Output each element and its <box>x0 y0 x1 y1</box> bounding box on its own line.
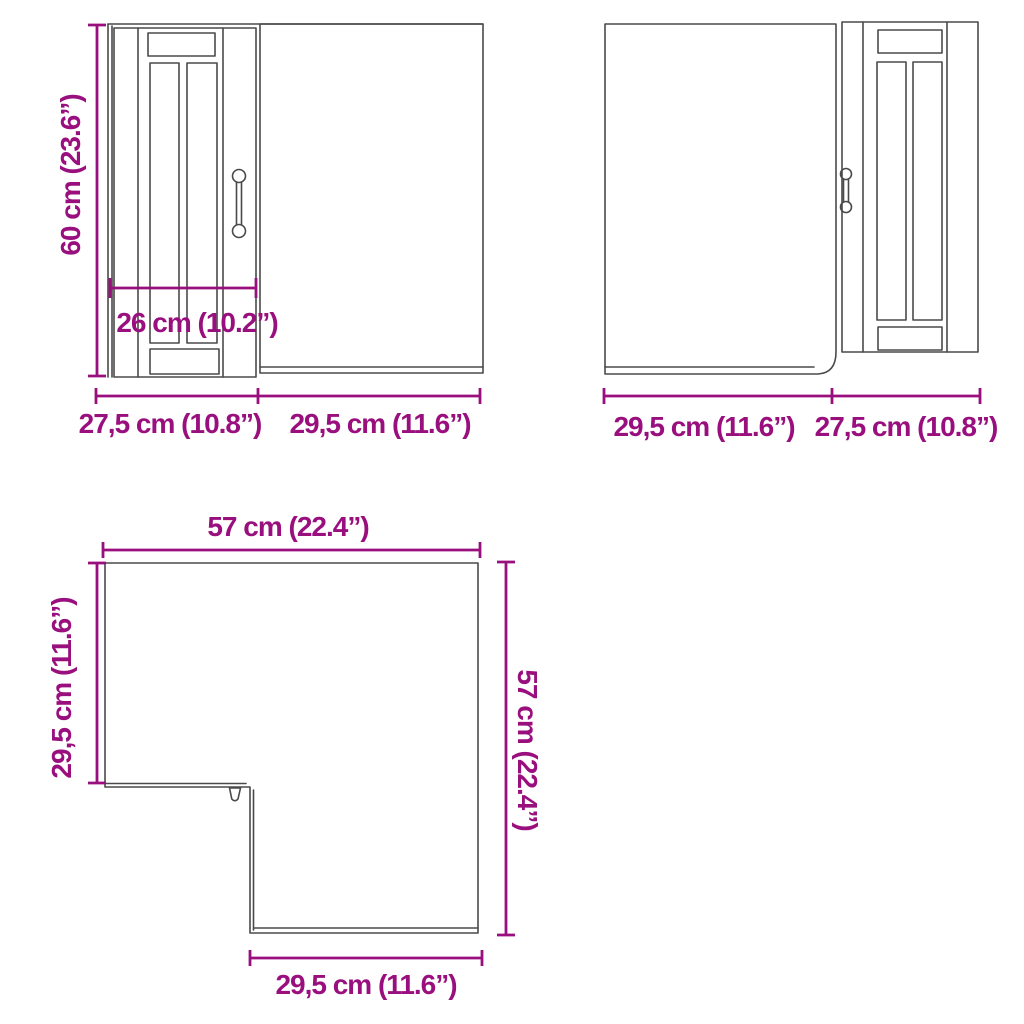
door-handle-top-icon <box>230 788 241 801</box>
door-handle-icon <box>233 170 246 238</box>
plan-right-dimension-label: 57 cm (22.4”) <box>512 600 542 900</box>
front-left-bottom-right-dimension-label: 29,5 cm (11.6”) <box>230 409 530 439</box>
door-glass-panel-right <box>187 63 217 343</box>
door-glass-panel-left <box>877 62 906 320</box>
door-glass-panel-right <box>913 62 942 320</box>
front-view-door-right <box>604 22 980 404</box>
plan-top-dimension-label: 57 cm (22.4”) <box>138 512 438 542</box>
dimension-diagram: 60 cm (23.6”) 26 cm (10.2”) 27,5 cm (10.… <box>0 0 1024 1024</box>
door-top-panel <box>878 30 942 53</box>
door-width-dimension-label: 26 cm (10.2”) <box>47 308 347 338</box>
door-bottom-panel <box>150 349 219 374</box>
cabinet-panel <box>605 24 836 374</box>
door-glass-panel-left <box>150 63 179 343</box>
door-top-panel <box>148 33 215 56</box>
plan-outline <box>105 563 478 933</box>
front-right-bottom-right-dimension-label: 27,5 cm (10.8”) <box>756 412 1024 442</box>
plan-view-corner-cabinet <box>88 542 515 966</box>
plan-left-dimension-label: 29,5 cm (11.6”) <box>47 538 77 838</box>
plan-bottom-dimension-label: 29,5 cm (11.6”) <box>216 970 516 1000</box>
height-dimension-label: 60 cm (23.6”) <box>56 25 86 325</box>
front-view-door-left <box>88 24 483 404</box>
door-bottom-panel <box>878 327 942 350</box>
